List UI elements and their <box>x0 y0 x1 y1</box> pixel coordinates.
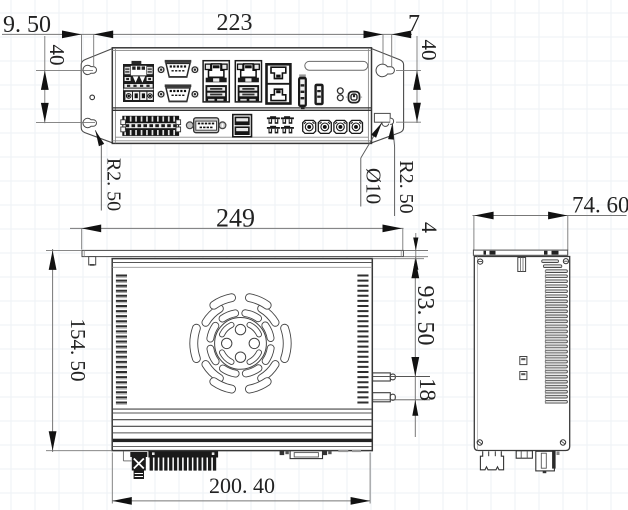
svg-text:200. 40: 200. 40 <box>209 473 275 498</box>
svg-text:249: 249 <box>216 204 255 233</box>
svg-text:9. 50: 9. 50 <box>3 12 51 38</box>
svg-text:93. 50: 93. 50 <box>412 286 438 346</box>
svg-text:154. 50: 154. 50 <box>66 319 90 382</box>
svg-text:7: 7 <box>408 11 420 37</box>
svg-text:40: 40 <box>45 45 69 66</box>
svg-text:Ø10: Ø10 <box>361 168 385 204</box>
svg-text:4: 4 <box>417 222 442 233</box>
svg-text:223: 223 <box>217 10 253 36</box>
svg-text:R2. 50: R2. 50 <box>102 158 124 211</box>
svg-text:R2. 50: R2. 50 <box>395 160 417 213</box>
svg-text:18: 18 <box>415 378 440 401</box>
svg-text:40: 40 <box>417 40 441 61</box>
svg-text:74. 60: 74. 60 <box>572 193 628 218</box>
